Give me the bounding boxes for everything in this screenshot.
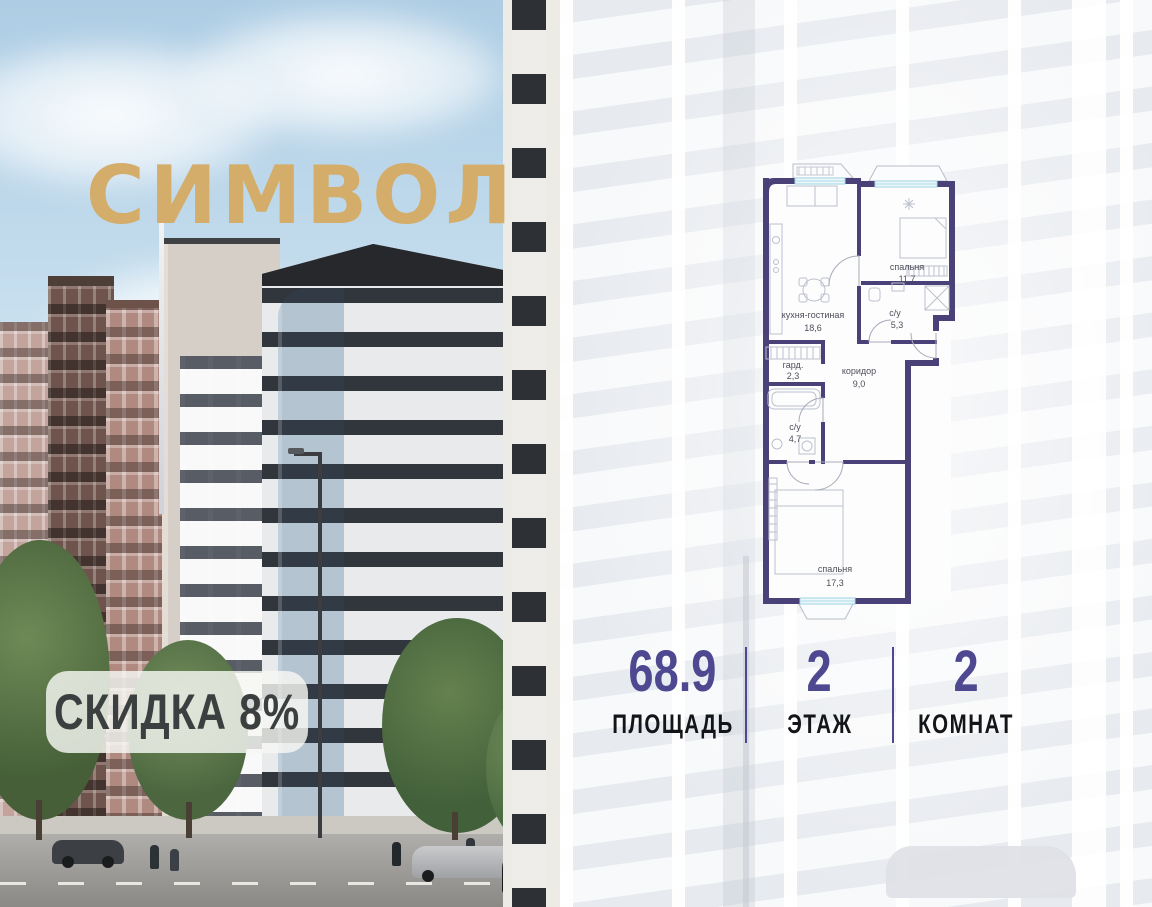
room-area: 4,7	[789, 434, 802, 444]
room-name: гард.	[783, 360, 804, 370]
discount-badge: СКИДКА 8%	[46, 671, 308, 753]
room-area: 9,0	[853, 379, 866, 389]
street-lamp-pole	[318, 452, 322, 838]
pedestrian	[170, 849, 179, 871]
brand-logo: СИМВОЛ	[86, 156, 478, 236]
car-dark	[52, 840, 124, 864]
room-area: 11,7	[899, 274, 916, 284]
building-right-tower	[503, 0, 560, 907]
tree-trunk	[186, 802, 192, 838]
street-lamp-head	[288, 448, 304, 454]
room-area: 5,3	[891, 320, 904, 330]
cloud	[180, 10, 510, 140]
window-column	[512, 0, 546, 907]
stat-floor: 2 ЭТАЖ	[747, 643, 892, 751]
room-name: кухня-гостиная	[782, 310, 845, 320]
room-name: с/у	[789, 422, 801, 432]
apartment-stats: 68.9 ПЛОЩАДЬ 2 ЭТАЖ 2 КОМНАТ	[600, 643, 1041, 751]
pedestrian	[150, 845, 159, 869]
lane-marking	[0, 882, 560, 885]
room-area: 2,3	[787, 371, 800, 381]
tree-trunk	[452, 812, 458, 840]
discount-badge-label: СКИДКА 8%	[54, 683, 300, 741]
pedestrian	[392, 842, 401, 866]
faint-car	[886, 846, 1076, 898]
glass-corner-bay	[278, 288, 344, 907]
tree-trunk	[36, 800, 42, 840]
stat-floor-label: ЭТАЖ	[787, 709, 852, 740]
balcony-bottom	[799, 604, 853, 619]
room-area: 18,6	[804, 323, 822, 333]
stat-area: 68.9 ПЛОЩАДЬ	[600, 643, 745, 751]
room-name: спальня	[890, 262, 924, 272]
room-name: с/у	[889, 308, 901, 318]
real-estate-listing-card[interactable]: СИМВОЛ СКИДКА 8%	[0, 0, 1152, 907]
apartment-info-panel: спальня 11,7 с/у 5,3 кухня-гостиная 18,6…	[560, 0, 1152, 907]
stat-area-label: ПЛОЩАДЬ	[612, 709, 734, 740]
balcony-bedroom	[869, 166, 947, 181]
building-photo: СИМВОЛ СКИДКА 8%	[0, 0, 560, 907]
floor-plan: спальня 11,7 с/у 5,3 кухня-гостиная 18,6…	[757, 158, 962, 620]
stat-floor-value: 2	[807, 643, 832, 701]
stat-area-value: 68.9	[628, 643, 716, 701]
room-area: 17,3	[826, 578, 844, 588]
room-name: коридор	[842, 366, 876, 376]
stat-rooms-label: КОМНАТ	[919, 709, 1015, 740]
room-name: спальня	[818, 564, 852, 574]
stat-rooms-value: 2	[954, 643, 979, 701]
stat-rooms: 2 КОМНАТ	[894, 643, 1039, 751]
